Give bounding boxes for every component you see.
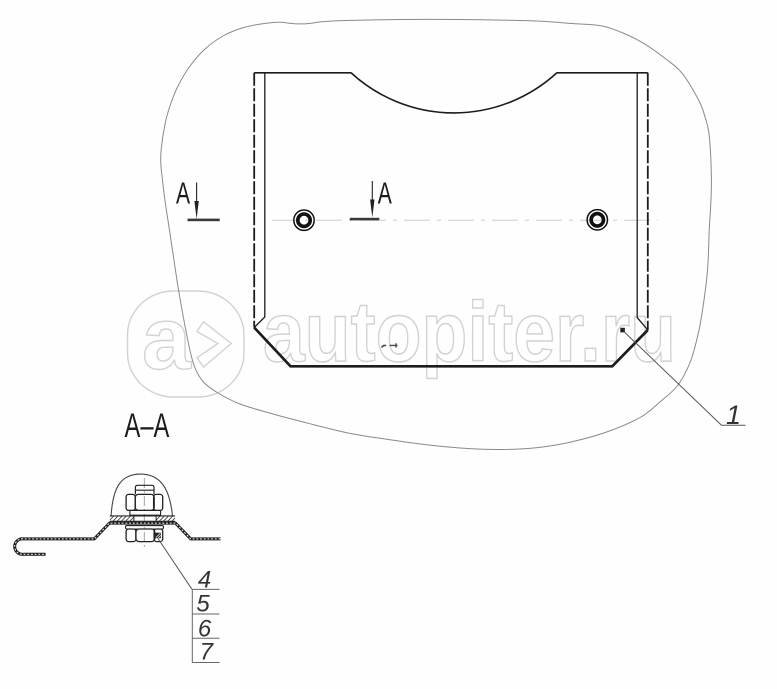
svg-text:7: 7 — [200, 639, 215, 666]
svg-text:5: 5 — [196, 591, 210, 618]
svg-text:4: 4 — [198, 566, 211, 593]
svg-text:A: A — [176, 175, 190, 210]
svg-text:A–A: A–A — [125, 408, 170, 445]
svg-text:a: a — [142, 289, 192, 388]
svg-text:1: 1 — [726, 400, 741, 430]
svg-text:A: A — [378, 175, 392, 210]
